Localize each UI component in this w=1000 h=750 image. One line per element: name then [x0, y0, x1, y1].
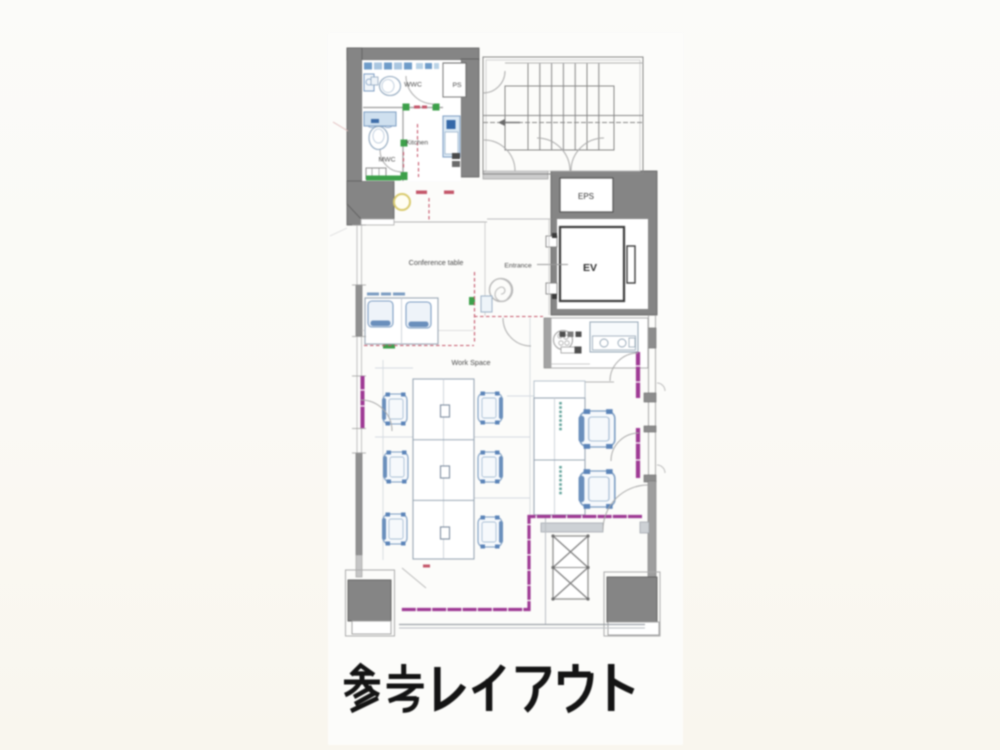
svg-text:PS: PS: [452, 82, 462, 89]
svg-text:EPS: EPS: [578, 192, 594, 201]
svg-text:Entrance: Entrance: [504, 263, 531, 270]
svg-text:Kitchen: Kitchen: [406, 140, 428, 147]
svg-text:MWC: MWC: [379, 157, 396, 164]
svg-text:Conference table: Conference table: [409, 258, 464, 267]
svg-text:EV: EV: [583, 262, 597, 274]
svg-text:WWC: WWC: [404, 82, 422, 89]
svg-text:Work Space: Work Space: [451, 358, 490, 367]
